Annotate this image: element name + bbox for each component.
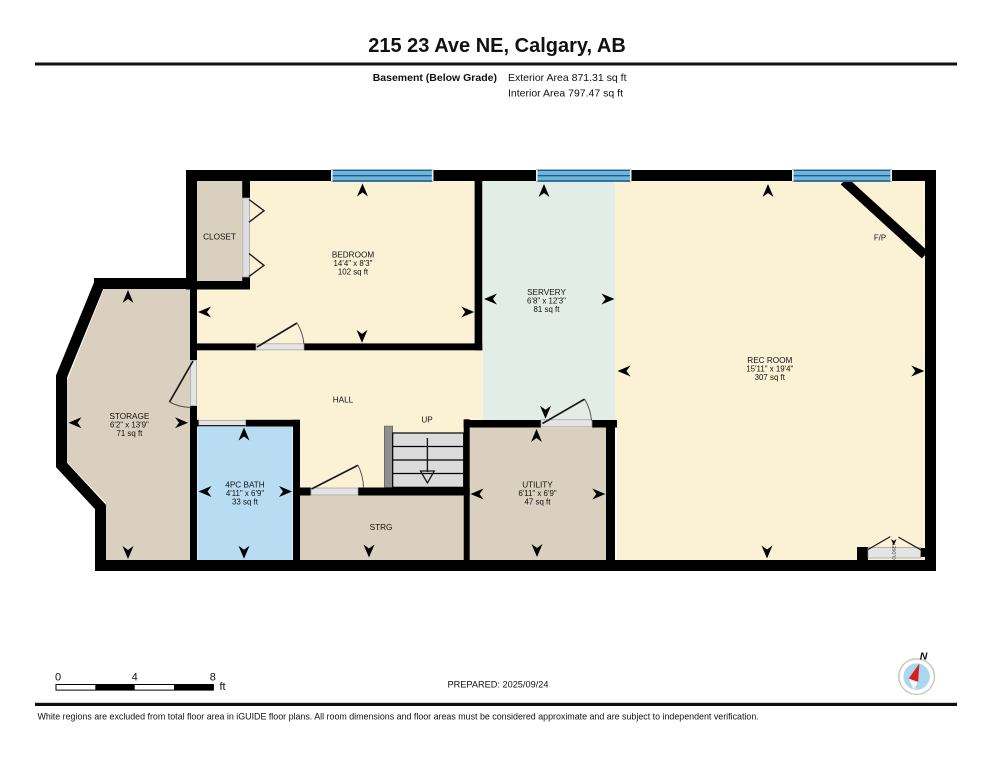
svg-text:4: 4	[132, 672, 138, 684]
svg-text:33 sq ft: 33 sq ft	[232, 498, 259, 507]
svg-text:HALL: HALL	[333, 396, 354, 405]
svg-text:8: 8	[210, 672, 216, 684]
svg-text:47 sq ft: 47 sq ft	[525, 498, 552, 507]
svg-text:PREPARED: 2025/09/24: PREPARED: 2025/09/24	[448, 680, 549, 690]
svg-text:307 sq ft: 307 sq ft	[755, 373, 786, 382]
svg-text:Interior Area 797.47 sq ft: Interior Area 797.47 sq ft	[508, 88, 623, 100]
svg-text:102 sq ft: 102 sq ft	[338, 268, 369, 277]
svg-text:ft: ft	[220, 681, 226, 693]
svg-text:CLOSET: CLOSET	[891, 543, 896, 560]
svg-text:UP: UP	[421, 416, 433, 425]
svg-text:CLOSET: CLOSET	[203, 233, 236, 242]
svg-text:0: 0	[55, 672, 61, 684]
svg-text:Basement (Below Grade): Basement (Below Grade)	[373, 72, 497, 84]
svg-text:81 sq ft: 81 sq ft	[534, 305, 561, 314]
svg-text:STRG: STRG	[370, 523, 393, 532]
svg-text:White regions are excluded fro: White regions are excluded from total fl…	[38, 712, 759, 722]
svg-text:F/P: F/P	[874, 234, 886, 243]
svg-text:N: N	[920, 651, 928, 663]
svg-text:Exterior Area 871.31 sq ft: Exterior Area 871.31 sq ft	[508, 72, 627, 84]
svg-text:71 sq ft: 71 sq ft	[116, 429, 143, 438]
svg-text:215 23 Ave NE, Calgary, AB: 215 23 Ave NE, Calgary, AB	[368, 35, 626, 57]
